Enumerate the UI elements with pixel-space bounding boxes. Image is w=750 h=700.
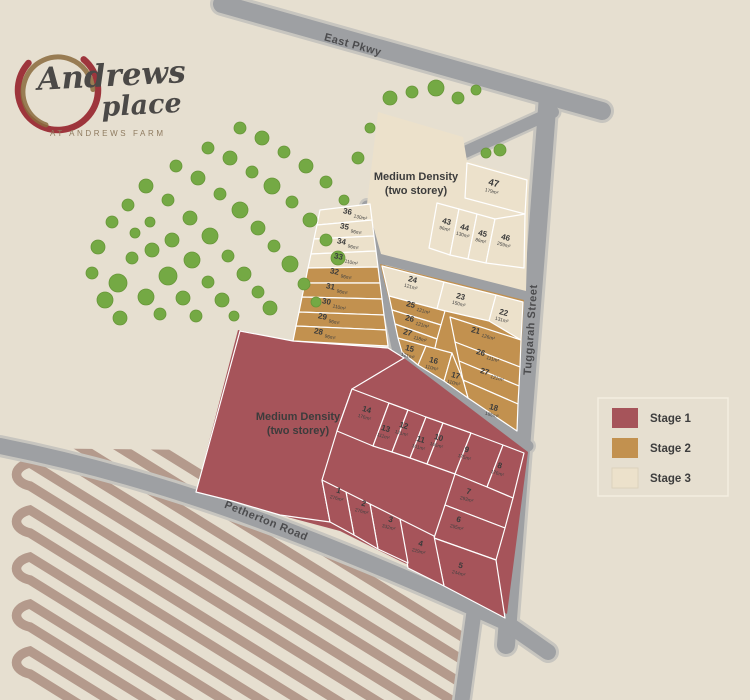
tree-icon [202, 142, 214, 154]
tree-icon [86, 267, 98, 279]
tree-icon [252, 286, 264, 298]
tree-icon [237, 267, 251, 281]
tree-icon [202, 228, 218, 244]
logo: Andrews place AT ANDREWS FARM [2, 34, 187, 147]
legend-swatch-stage2 [612, 438, 638, 458]
tree-icon [165, 233, 179, 247]
tree-icon [268, 240, 280, 252]
medium-density-top-line1: Medium Density [374, 171, 459, 183]
tree-icon [264, 178, 280, 194]
tree-icon [222, 250, 234, 262]
tree-icon [106, 216, 118, 228]
tree-icon [232, 202, 248, 218]
tree-icon [365, 123, 375, 133]
tree-icon [320, 234, 332, 246]
tree-icon [303, 213, 317, 227]
tree-icon [278, 146, 290, 158]
tree-icon [234, 122, 246, 134]
tree-icon [223, 151, 237, 165]
legend-swatch-stage1 [612, 408, 638, 428]
tree-icon [91, 240, 105, 254]
tree-icon [202, 276, 214, 288]
tree-icon [145, 217, 155, 227]
tree-icon [183, 211, 197, 225]
tree-icon [130, 228, 140, 238]
tree-icon [145, 243, 159, 257]
tree-icon [126, 252, 138, 264]
tree-icon [109, 274, 127, 292]
tree-icon [298, 278, 310, 290]
tree-icon [229, 311, 239, 321]
tree-icon [214, 188, 226, 200]
masterplan-canvas: 1276m² 2276m² 3332m² 4229m² 5244m² 6255m… [0, 0, 750, 700]
medium-density-s1-line2: (two storey) [267, 425, 330, 437]
medium-density-top-line2: (two storey) [385, 185, 448, 197]
tree-icon [320, 176, 332, 188]
masterplan-svg: 1276m² 2276m² 3332m² 4229m² 5244m² 6255m… [0, 0, 750, 700]
tree-icon [406, 86, 418, 98]
legend-label-stage3: Stage 3 [650, 473, 691, 485]
tree-icon [494, 144, 506, 156]
tree-icon [122, 199, 134, 211]
logo-subtitle: AT ANDREWS FARM [50, 129, 166, 138]
tree-icon [481, 148, 491, 158]
tree-icon [139, 179, 153, 193]
tree-icon [246, 166, 258, 178]
tree-icon [251, 221, 265, 235]
tree-icon [138, 289, 154, 305]
tree-icon [97, 292, 113, 308]
tree-icon [184, 252, 200, 268]
tree-icon [191, 171, 205, 185]
tree-icon [339, 195, 349, 205]
tree-icon [154, 308, 166, 320]
tree-icon [299, 159, 313, 173]
tree-icon [263, 301, 277, 315]
tree-icon [162, 194, 174, 206]
tree-icon [215, 293, 229, 307]
legend: Stage 1 Stage 2 Stage 3 [598, 398, 728, 496]
tree-icon [352, 152, 364, 164]
legend-label-stage2: Stage 2 [650, 443, 691, 455]
tree-icon [159, 267, 177, 285]
tree-icon [311, 297, 321, 307]
tree-icon [383, 91, 397, 105]
logo-title-line2: place [101, 88, 183, 123]
legend-swatch-stage3 [612, 468, 638, 488]
tree-icon [471, 85, 481, 95]
tree-icon [282, 256, 298, 272]
tree-icon [428, 80, 444, 96]
medium-density-s1-line1: Medium Density [256, 411, 341, 423]
tree-icon [113, 311, 127, 325]
tree-icon [452, 92, 464, 104]
tree-icon [170, 160, 182, 172]
legend-label-stage1: Stage 1 [650, 413, 692, 425]
tree-icon [176, 291, 190, 305]
tree-icon [190, 310, 202, 322]
tree-icon [286, 196, 298, 208]
tree-icon [255, 131, 269, 145]
